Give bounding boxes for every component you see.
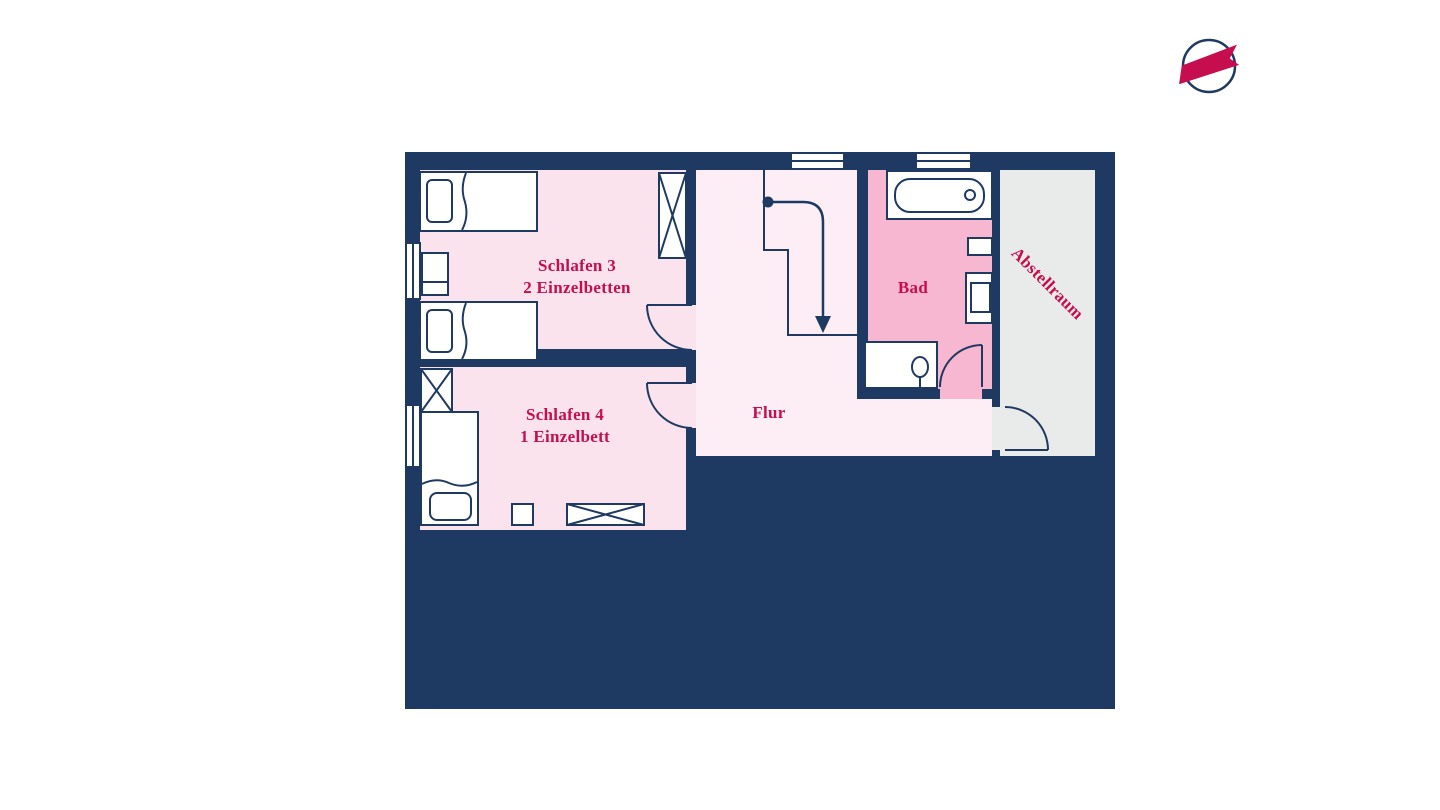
bed-icon-3 <box>421 412 478 525</box>
sink-icon <box>966 273 995 323</box>
floorplan: Schlafen 3 2 Einzelbetten Schlafen 4 1 E… <box>405 152 1115 709</box>
window-left-schlafen3 <box>406 243 420 299</box>
label-bad: Bad <box>898 278 928 297</box>
label-flur: Flur <box>752 403 785 422</box>
window-top-flur <box>791 153 844 169</box>
nightstand-icon-2 <box>512 504 533 525</box>
label-schlafen3-subtitle: 2 Einzelbetten <box>523 278 631 297</box>
brand-logo <box>1170 36 1246 96</box>
shelf-icon-bad <box>968 238 992 255</box>
door-opening-schlafen4 <box>686 383 696 428</box>
label-schlafen4-subtitle: 1 Einzelbett <box>520 427 610 446</box>
bed-icon-1 <box>420 172 537 231</box>
toilet-icon <box>865 342 937 388</box>
label-schlafen4-title: Schlafen 4 <box>526 405 604 424</box>
wardrobe-icon-schlafen3 <box>659 173 686 258</box>
window-top-bad <box>916 153 971 169</box>
label-schlafen3-title: Schlafen 3 <box>538 256 616 275</box>
page: Schlafen 3 2 Einzelbetten Schlafen 4 1 E… <box>0 0 1440 810</box>
bed-icon-2 <box>420 302 537 360</box>
door-opening-abstellraum <box>992 407 1000 450</box>
window-left-schlafen4 <box>406 405 420 467</box>
door-opening-bad <box>940 389 982 399</box>
bathtub-icon <box>887 171 992 219</box>
nightstand-icon-1 <box>422 253 448 295</box>
door-opening-schlafen3 <box>686 305 696 350</box>
shaft-icon-schlafen4 <box>421 369 452 412</box>
wardrobe-icon-schlafen4 <box>567 504 644 525</box>
